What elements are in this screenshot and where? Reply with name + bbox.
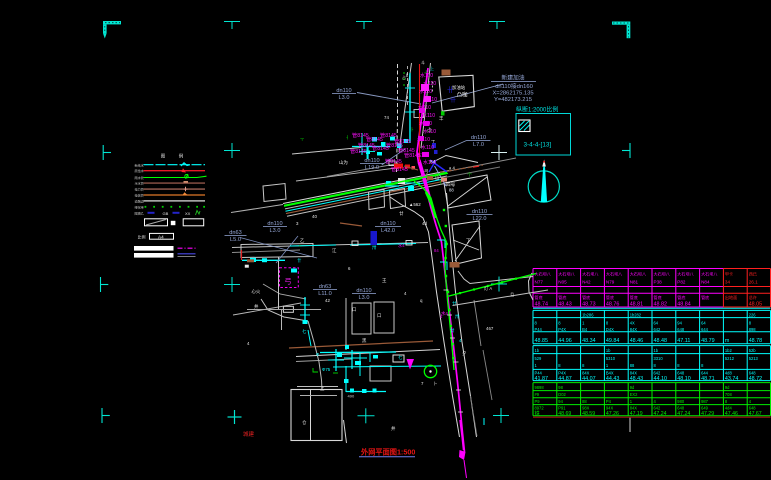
svg-text:L19.0: L19.0 (365, 165, 379, 171)
svg-text:大石坝八: 大石坝八 (654, 271, 670, 277)
svg-text:Ⅱ: Ⅱ (406, 73, 408, 78)
svg-text:管底: 管底 (606, 294, 614, 300)
svg-text:26.1: 26.1 (749, 280, 758, 285)
svg-text:心火: 心火 (252, 288, 261, 294)
svg-text:山为: 山为 (339, 159, 348, 166)
svg-text:1b286: 1b286 (582, 313, 594, 318)
svg-text:大石坝八: 大石坝八 (630, 271, 646, 277)
svg-text:管底: 管底 (654, 294, 662, 300)
svg-text:管底: 管底 (582, 294, 590, 300)
svg-text:1b: 1b (535, 348, 540, 353)
svg-text:N05: N05 (558, 280, 567, 285)
svg-text:642: 642 (654, 406, 662, 411)
svg-text:47.24: 47.24 (677, 411, 690, 417)
svg-text:9d: 9d (630, 385, 635, 390)
svg-text:XX: XX (185, 211, 191, 216)
svg-text:卄: 卄 (297, 257, 302, 264)
svg-text:GB: GB (163, 211, 169, 216)
svg-text:口: 口 (352, 307, 356, 312)
svg-text:电信管: 电信管 (135, 193, 144, 198)
svg-text:48.34: 48.34 (582, 338, 596, 344)
svg-text:48.43: 48.43 (558, 302, 572, 308)
svg-text:水110: 水110 (423, 128, 436, 135)
svg-text:490: 490 (348, 394, 355, 399)
svg-text:纵断1:2000比例: 纵断1:2000比例 (516, 106, 558, 114)
svg-text:江: 江 (332, 247, 337, 254)
svg-text:84: 84 (434, 248, 439, 253)
svg-text:44.87: 44.87 (558, 376, 572, 382)
svg-text:L42.0: L42.0 (381, 228, 395, 234)
svg-text:48.76: 48.76 (606, 302, 620, 308)
svg-text:48.78: 48.78 (749, 338, 763, 344)
svg-text:P4X: P4X (558, 327, 566, 332)
svg-text:47.24: 47.24 (654, 411, 667, 417)
svg-text:47.26: 47.26 (606, 411, 619, 417)
svg-text:64: 64 (654, 321, 659, 326)
svg-text:井: 井 (254, 303, 259, 310)
svg-text:水110: 水110 (422, 112, 435, 119)
svg-text:灯 A: 灯 A (484, 285, 492, 292)
svg-text:道路边: 道路边 (135, 199, 145, 204)
svg-text:L22.0: L22.0 (473, 216, 487, 222)
svg-text:卜: 卜 (433, 381, 437, 386)
svg-text:44.43: 44.43 (606, 376, 620, 382)
svg-text:48.71: 48.71 (701, 376, 715, 382)
svg-text:84X: 84X (630, 327, 638, 332)
svg-text:P9: P9 (535, 399, 541, 404)
svg-text:47.46: 47.46 (725, 411, 738, 417)
svg-text:5213: 5213 (749, 356, 759, 361)
svg-text:94: 94 (558, 399, 563, 404)
svg-text:88: 88 (449, 188, 454, 193)
svg-text:原给水: 原给水 (135, 168, 145, 173)
svg-text:管底: 管底 (535, 294, 543, 300)
svg-text:P82: P82 (677, 280, 686, 285)
svg-text:48.73: 48.73 (582, 302, 596, 308)
svg-text:管8145: 管8145 (404, 151, 421, 159)
svg-text:47.67: 47.67 (749, 411, 762, 417)
svg-text:EX2: EX2 (630, 392, 638, 397)
svg-text:4d4: 4d4 (725, 406, 733, 411)
svg-text:Ф75: Ф75 (322, 367, 331, 372)
svg-text:廿: 廿 (399, 210, 404, 217)
svg-text:4d8: 4d8 (725, 371, 733, 376)
svg-text:七: 七 (398, 354, 403, 360)
svg-text:仓: 仓 (302, 419, 307, 425)
svg-text:L3.0: L3.0 (339, 95, 350, 101)
svg-text:648: 648 (749, 406, 757, 411)
svg-text:m: m (725, 338, 730, 344)
svg-text:5310: 5310 (606, 356, 616, 361)
svg-text:49.84: 49.84 (606, 338, 620, 344)
svg-text:98: 98 (558, 385, 563, 390)
svg-text:1b: 1b (654, 348, 659, 353)
svg-text:污水管: 污水管 (135, 181, 144, 186)
svg-text:9898: 9898 (535, 385, 545, 390)
svg-text:94: 94 (677, 321, 682, 326)
svg-text:40: 40 (312, 214, 317, 219)
svg-text:N79: N79 (606, 280, 615, 285)
svg-text:ㅓ: ㅓ (438, 179, 442, 186)
svg-text:ㅏ: ㅏ (410, 126, 414, 133)
svg-text:48.72: 48.72 (749, 376, 763, 382)
svg-text:L3.0: L3.0 (270, 228, 281, 234)
svg-text:⌐: ⌐ (299, 243, 302, 248)
svg-text:648: 648 (677, 371, 685, 376)
svg-text:大石坝八: 大石坝八 (677, 271, 693, 277)
svg-text:529: 529 (535, 356, 543, 361)
svg-text:卄: 卄 (450, 96, 456, 104)
svg-text:外网平面图1:500: 外网平面图1:500 (360, 448, 415, 457)
svg-text:卅: 卅 (372, 244, 377, 251)
svg-text:新给水: 新给水 (135, 162, 145, 167)
svg-text:Y=482173.215: Y=482173.215 (494, 97, 532, 103)
svg-text:648: 648 (677, 327, 685, 332)
svg-text:围墙乙: 围墙乙 (135, 211, 144, 216)
svg-text:夕: 夕 (462, 350, 466, 357)
svg-text:44.10: 44.10 (654, 376, 668, 382)
svg-text:44.07: 44.07 (582, 376, 596, 382)
svg-text:980: 980 (677, 399, 685, 404)
svg-text:64: 64 (701, 321, 706, 326)
svg-text:X=2862175.135: X=2862175.135 (492, 91, 533, 97)
svg-text:987: 987 (701, 399, 709, 404)
svg-text:88: 88 (582, 399, 587, 404)
svg-text:N77: N77 (535, 280, 544, 285)
svg-text:ㅓ: ㅓ (345, 134, 349, 141)
svg-text:铁: 铁 (535, 409, 540, 417)
svg-text:649: 649 (701, 406, 709, 411)
svg-text:88: 88 (630, 363, 635, 368)
svg-text:水110: 水110 (421, 144, 434, 151)
svg-text:52b: 52b (749, 348, 757, 353)
svg-text:廿: 廿 (450, 327, 455, 334)
svg-text:七: 七 (302, 328, 307, 334)
svg-text:P44: P44 (535, 327, 543, 332)
svg-text:水4: 水4 (441, 310, 448, 316)
svg-text:王: 王 (382, 278, 387, 283)
svg-text:D4X: D4X (606, 327, 614, 332)
svg-text:大石坝八: 大石坝八 (582, 271, 598, 277)
svg-text:大石坝八: 大石坝八 (701, 271, 717, 277)
svg-text:丰: 丰 (439, 115, 444, 122)
svg-text:48.79: 48.79 (701, 338, 715, 344)
svg-text:出地面: 出地面 (725, 294, 737, 300)
svg-text:D02: D02 (558, 392, 566, 397)
svg-text:3310: 3310 (654, 356, 664, 361)
svg-text:48.69: 48.69 (558, 411, 571, 417)
svg-text:1b282: 1b282 (630, 313, 642, 318)
svg-text:47.11: 47.11 (677, 338, 690, 344)
svg-text:#9: #9 (535, 392, 540, 397)
svg-text:ㅗ: ㅗ (424, 69, 428, 74)
svg-text:467: 467 (486, 326, 494, 331)
svg-text:大石坝八: 大石坝八 (535, 271, 551, 277)
svg-text:N84: N84 (701, 280, 710, 285)
svg-text:管底: 管底 (677, 294, 685, 300)
svg-text:管底: 管底 (630, 294, 638, 300)
svg-text:48.85: 48.85 (535, 338, 549, 344)
svg-text:48.10: 48.10 (677, 376, 691, 382)
svg-text:例: 例 (179, 153, 184, 160)
svg-text:644: 644 (701, 327, 709, 332)
svg-text:比例: 比例 (138, 233, 146, 239)
svg-text:井: 井 (391, 425, 396, 432)
svg-text:47.19: 47.19 (630, 411, 643, 417)
svg-text:L3.0: L3.0 (359, 295, 370, 301)
svg-text:4X: 4X (630, 321, 635, 326)
svg-text:L5.0: L5.0 (230, 237, 241, 243)
svg-text:dn110接dn160: dn110接dn160 (495, 82, 533, 90)
svg-text:5212: 5212 (725, 356, 735, 361)
svg-text:48.43: 48.43 (630, 376, 644, 382)
svg-text:管8145: 管8145 (385, 157, 402, 165)
svg-text:管底: 管底 (701, 294, 709, 300)
svg-text:98X: 98X (582, 406, 590, 411)
svg-text:84X: 84X (630, 406, 638, 411)
svg-text:弓: 弓 (285, 278, 292, 286)
svg-text:雨水管: 雨水管 (135, 175, 144, 180)
svg-text:48.84: 48.84 (677, 302, 691, 308)
svg-text:丁: 丁 (466, 238, 471, 243)
svg-text:B4: B4 (582, 327, 588, 332)
svg-text:644: 644 (701, 371, 709, 376)
svg-text:K4: K4 (430, 159, 436, 164)
svg-text:新建加油: 新建加油 (501, 74, 524, 82)
svg-text:口: 口 (377, 313, 381, 318)
svg-text:大石坝八: 大石坝八 (606, 271, 622, 277)
svg-text:48.74: 48.74 (535, 302, 549, 308)
svg-text:44.96: 44.96 (558, 338, 572, 344)
svg-text:N42: N42 (582, 280, 591, 285)
svg-text:总许: 总许 (749, 294, 757, 300)
svg-text:226: 226 (749, 313, 757, 318)
svg-text:42: 42 (325, 298, 330, 303)
svg-text:47.29: 47.29 (701, 411, 714, 417)
svg-text:▲562: ▲562 (409, 202, 421, 207)
svg-text:城建: 城建 (243, 430, 255, 438)
svg-text:ㅜ: ㅜ (300, 137, 304, 142)
svg-text:9d: 9d (725, 385, 730, 390)
svg-text:84X: 84X (630, 371, 638, 376)
svg-text:斗: 斗 (421, 60, 425, 65)
svg-text:电力管: 电力管 (135, 187, 144, 192)
svg-text:水4: 水4 (398, 242, 405, 248)
svg-text:648: 648 (749, 371, 757, 376)
svg-text:P91: P91 (558, 406, 566, 411)
svg-text:48.81: 48.81 (630, 302, 644, 308)
svg-text:加油站: 加油站 (452, 84, 466, 91)
svg-text:凸咖: 凸咖 (457, 91, 469, 99)
svg-text:管8145: 管8145 (391, 165, 408, 173)
svg-text:642: 642 (654, 327, 662, 332)
svg-text:上: 上 (320, 385, 325, 391)
svg-text:上: 上 (430, 65, 434, 71)
svg-text:3-4-4-[13]: 3-4-4-[13] (524, 142, 552, 149)
svg-text:B4X: B4X (606, 371, 614, 376)
svg-text:P4X: P4X (558, 371, 566, 376)
svg-text:648: 648 (677, 406, 685, 411)
svg-text:管底: 管底 (558, 294, 566, 300)
svg-text:43.74: 43.74 (725, 376, 739, 382)
svg-text:48.05: 48.05 (749, 302, 763, 308)
svg-text:绿化带: 绿化带 (135, 205, 144, 210)
svg-text:642: 642 (654, 371, 662, 376)
svg-text:708: 708 (725, 392, 733, 397)
svg-text:48.48: 48.48 (654, 338, 668, 344)
svg-text:L7.0: L7.0 (473, 142, 484, 148)
svg-text:P38: P38 (654, 280, 663, 285)
svg-text:P4: P4 (606, 399, 612, 404)
svg-text:94X: 94X (606, 406, 614, 411)
svg-text:4d: 4d (422, 221, 427, 226)
svg-text:84X: 84X (582, 371, 590, 376)
svg-text:管8145: 管8145 (380, 131, 397, 139)
svg-text:41.87: 41.87 (535, 376, 549, 382)
svg-text:8972: 8972 (535, 406, 545, 411)
svg-text:卅: 卅 (455, 313, 460, 320)
svg-text:大石坝八: 大石坝八 (558, 271, 574, 277)
svg-text:a 4: a 4 (449, 166, 455, 171)
svg-text:A4: A4 (158, 234, 164, 239)
svg-text:74: 74 (384, 115, 389, 120)
svg-text:L11.0: L11.0 (318, 291, 332, 297)
svg-text:1b2: 1b2 (725, 348, 733, 353)
svg-text:34: 34 (725, 280, 731, 285)
svg-text:西已: 西已 (749, 272, 757, 277)
svg-text:N81: N81 (630, 280, 639, 285)
svg-text:且: 且 (510, 292, 514, 297)
svg-text:898: 898 (749, 327, 757, 332)
svg-text:管8145: 管8145 (350, 147, 367, 155)
svg-text:48.82: 48.82 (654, 302, 668, 308)
svg-text:1b: 1b (606, 348, 611, 353)
svg-text:48.59: 48.59 (582, 411, 595, 417)
svg-text:48.46: 48.46 (630, 338, 644, 344)
svg-text:P44: P44 (535, 371, 543, 376)
svg-text:甲卡: 甲卡 (725, 271, 733, 277)
